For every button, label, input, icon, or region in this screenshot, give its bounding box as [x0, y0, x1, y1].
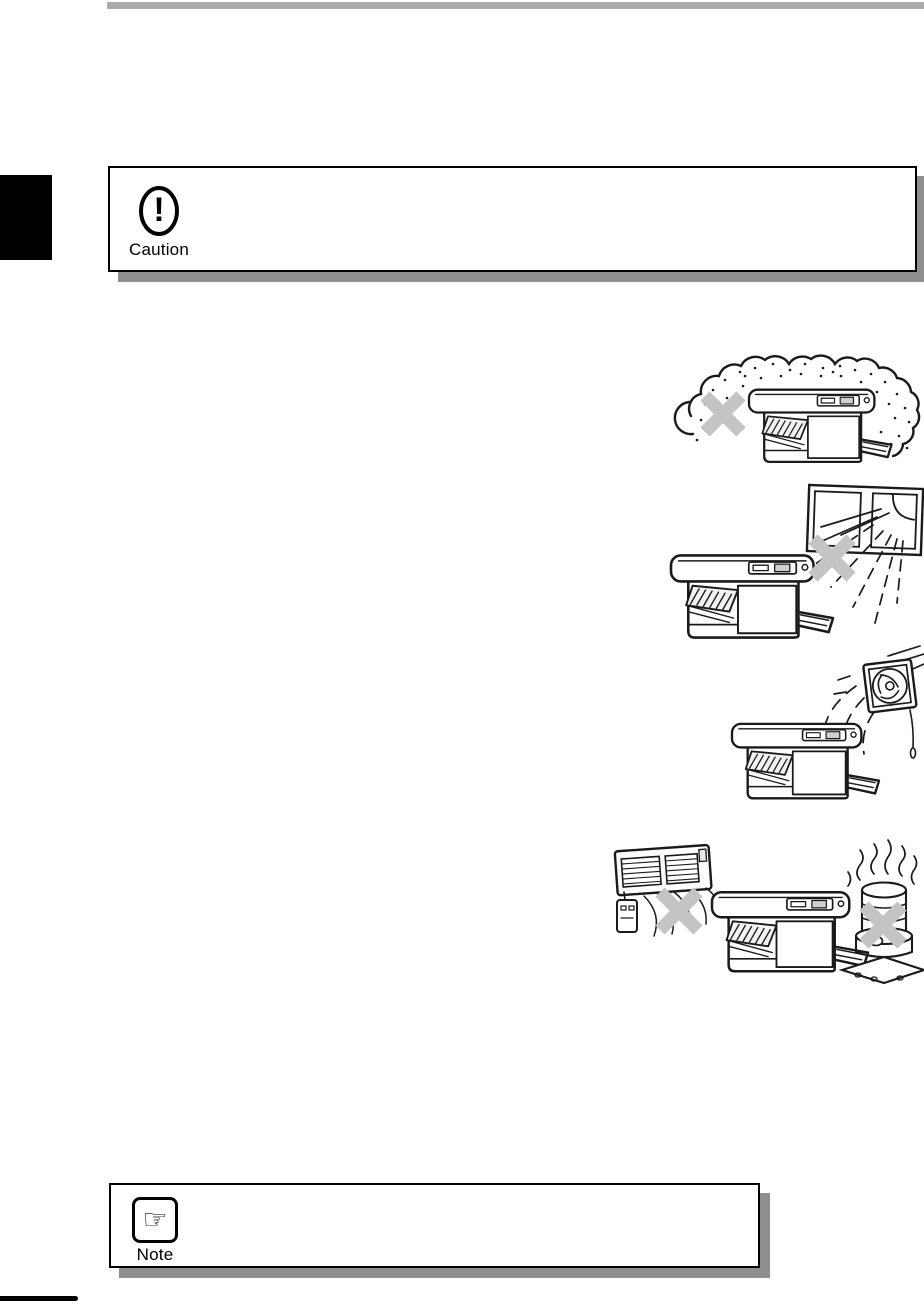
chapter-thumb-tab: [0, 175, 52, 260]
remote-cord: [624, 892, 625, 900]
copier-illustration: [732, 724, 879, 798]
copier-illustration: [749, 390, 892, 462]
cord-handle: [911, 748, 916, 758]
illustration-dusty-area: [685, 352, 924, 474]
exhaust-fan-icon: [863, 659, 916, 712]
heat-waves: [848, 840, 917, 886]
cross-mark: [660, 892, 698, 930]
airflow-ticks: [834, 676, 850, 694]
cross-mark: [705, 396, 741, 432]
note-icon-column: ☞ Note: [127, 1197, 183, 1265]
exclamation-oval-icon: !: [136, 184, 182, 238]
illustration-direct-sunlight: [645, 483, 924, 640]
pull-cord: [910, 710, 913, 748]
wall-heater-icon: [615, 845, 712, 895]
illustration-exhaust-fan: [660, 646, 924, 808]
copier-illustration: [712, 892, 868, 971]
page-footer-rule: [0, 1296, 78, 1301]
caution-icon-column: ! Caution: [124, 184, 194, 260]
manual-page: ! Caution: [0, 0, 924, 1304]
pointing-hand-icon: ☞: [132, 1197, 178, 1243]
note-label: Note: [137, 1245, 174, 1265]
page-header-bar: [107, 2, 924, 9]
note-box: ☞ Note: [109, 1183, 760, 1268]
remote-control: [617, 900, 637, 932]
pointing-hand-glyph: ☞: [142, 1206, 167, 1234]
illustration-heater-stove: [610, 838, 924, 988]
copier-illustration: [671, 555, 833, 637]
exclamation-glyph: !: [153, 191, 164, 229]
caution-label: Caution: [129, 240, 189, 260]
caution-box: ! Caution: [108, 166, 917, 272]
